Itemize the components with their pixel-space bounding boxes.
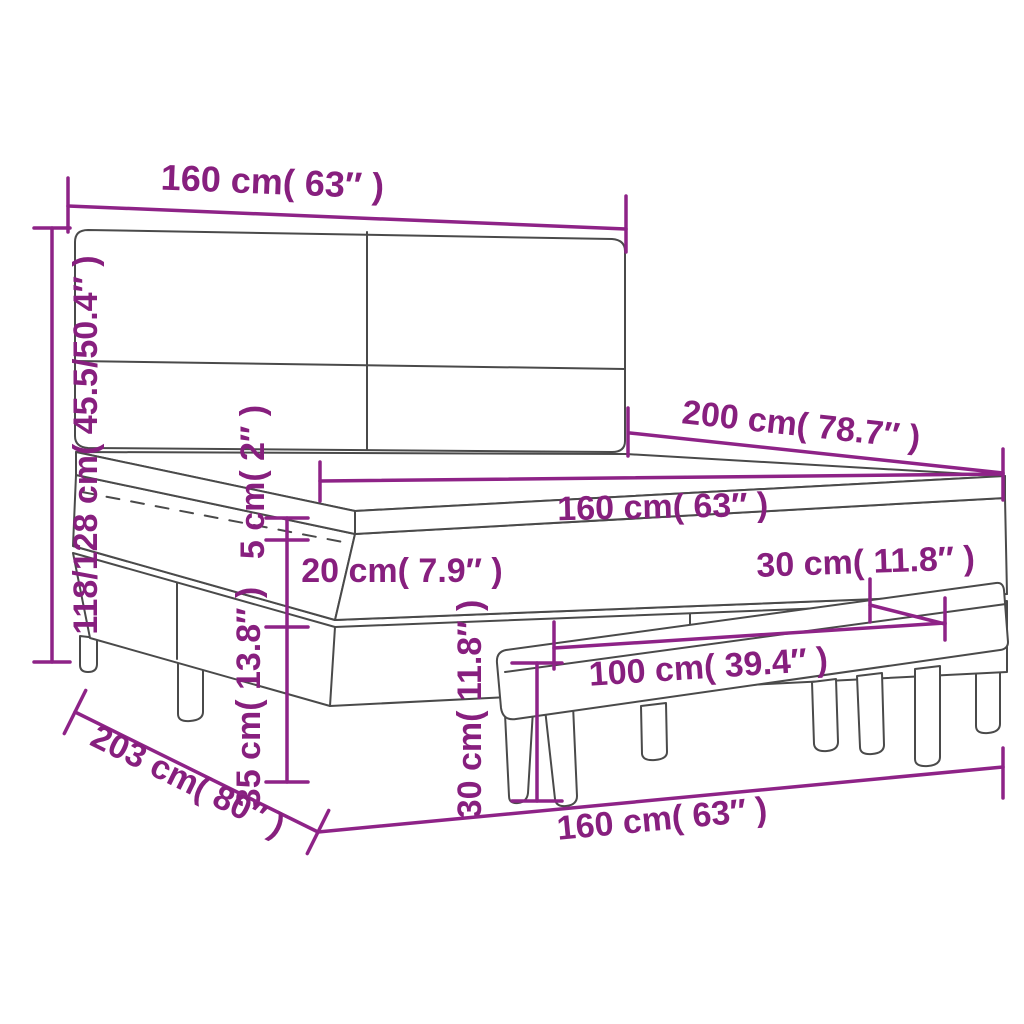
bench-leg-mid-back xyxy=(641,703,667,760)
dim-topper-height-label: 5 cm( 2″ ) xyxy=(234,405,272,559)
bench-leg-mid-right xyxy=(812,679,838,751)
dim-headboard-width-label: 160 cm( 63″ ) xyxy=(160,157,385,207)
dim-line xyxy=(68,206,626,229)
bench-leg-front-left xyxy=(505,710,533,803)
diagram-canvas: 160 cm( 63″ ) 118/128 cm( 45.5/50.4″ ) 2… xyxy=(0,0,1024,1024)
dim-bed-width-bottom: 160 cm( 63″ ) xyxy=(318,748,1003,848)
dim-overall-height: 118/128 cm( 45.5/50.4″ ) xyxy=(34,228,105,662)
bench-leg-back-left xyxy=(545,705,577,806)
bed-dimension-diagram: 160 cm( 63″ ) 118/128 cm( 45.5/50.4″ ) 2… xyxy=(0,0,1024,1024)
tick xyxy=(64,691,85,734)
dim-bed-length-label: 200 cm( 78.7″ ) xyxy=(680,393,922,457)
dim-bench-height-label: 30 cm( 11.8″ ) xyxy=(451,600,489,819)
dim-overall-height-label: 118/128 cm( 45.5/50.4″ ) xyxy=(67,255,105,634)
dim-base-height-label: 35 cm( 13.8″ ) xyxy=(230,587,268,807)
dim-mattress-width-label: 160 cm( 63″ ) xyxy=(557,486,769,528)
bench-leg-back-right xyxy=(857,673,884,754)
dim-mattress-height-label: 20 cm( 7.9″ ) xyxy=(301,552,503,590)
bench-leg-front-right xyxy=(915,666,940,766)
bed-leg-front-left xyxy=(80,636,97,672)
headboard-panel xyxy=(75,230,625,452)
dim-bench-depth-label: 30 cm( 11.8″ ) xyxy=(756,539,976,585)
